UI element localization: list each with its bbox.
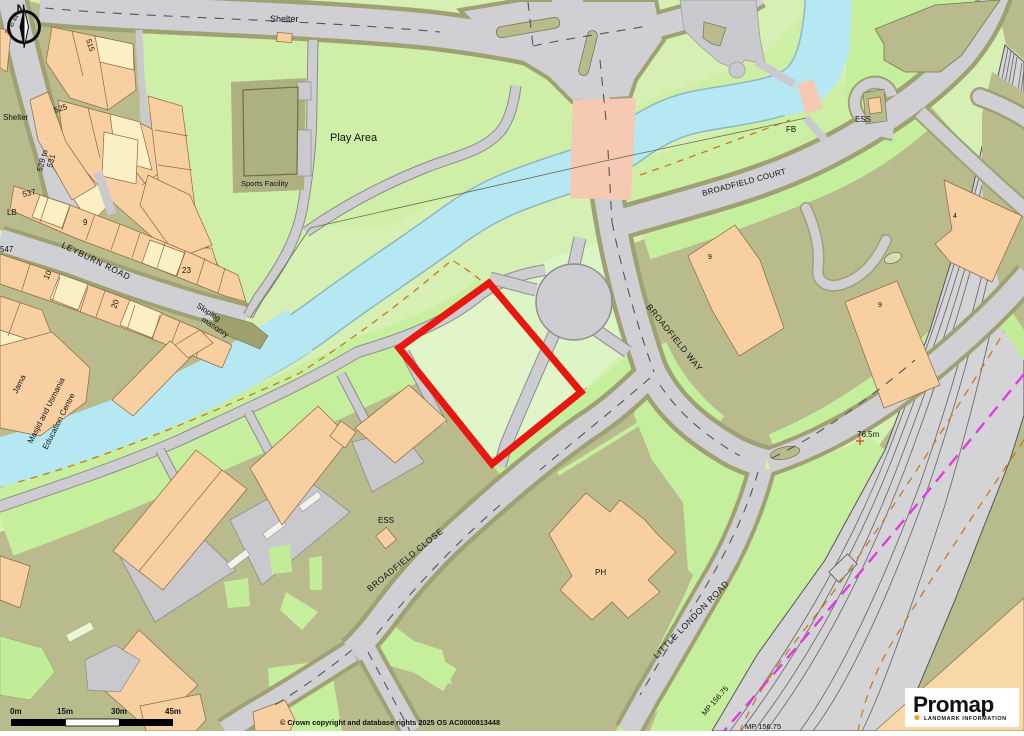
svg-text:9: 9: [83, 218, 88, 227]
svg-text:PH: PH: [595, 568, 606, 577]
svg-text:15m: 15m: [57, 707, 73, 716]
svg-text:© Crown copyright and database: © Crown copyright and database rights 20…: [280, 718, 500, 727]
svg-text:Promap: Promap: [913, 692, 994, 717]
svg-text:9: 9: [878, 302, 882, 309]
svg-text:45m: 45m: [165, 707, 181, 716]
svg-text:LB: LB: [7, 208, 17, 217]
svg-text:N: N: [17, 2, 26, 16]
svg-text:0m: 0m: [10, 707, 22, 716]
svg-text:Shelter: Shelter: [3, 113, 29, 122]
svg-text:4: 4: [953, 213, 957, 220]
svg-text:MP 156.75: MP 156.75: [745, 722, 781, 731]
svg-text:Play Area: Play Area: [330, 132, 378, 144]
svg-text:Shelter: Shelter: [270, 14, 299, 24]
svg-text:30m: 30m: [111, 707, 127, 716]
svg-text:9: 9: [708, 254, 712, 261]
svg-text:ESS: ESS: [855, 115, 871, 124]
svg-text:ESS: ESS: [378, 516, 394, 525]
svg-text:FB: FB: [786, 125, 796, 134]
svg-text:547: 547: [0, 245, 14, 254]
svg-text:23: 23: [182, 266, 191, 275]
svg-text:LANDMARK INFORMATION: LANDMARK INFORMATION: [924, 716, 1007, 722]
svg-text:Sports Facility: Sports Facility: [241, 179, 288, 188]
